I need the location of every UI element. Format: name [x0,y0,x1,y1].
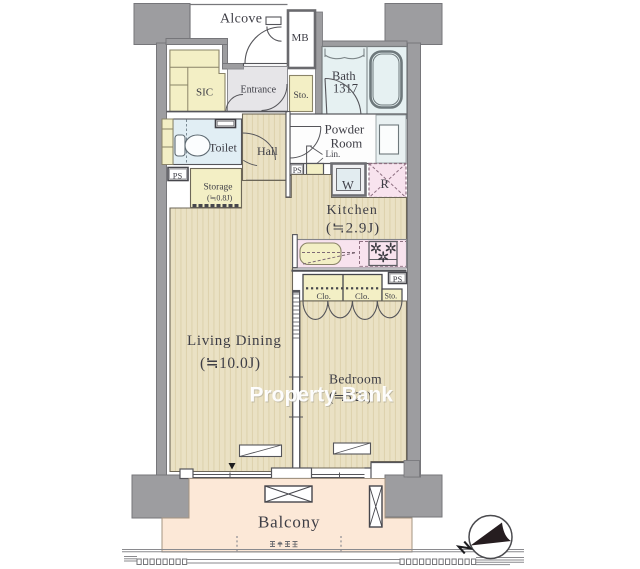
svg-text:Living Dining: Living Dining [187,333,282,349]
svg-text:W: W [342,179,354,193]
svg-text:PS: PS [173,170,183,180]
svg-text:Toilet: Toilet [209,141,237,155]
svg-text:1317: 1317 [333,82,358,96]
svg-text:(≒2.9J): (≒2.9J) [326,221,380,237]
svg-text:Sto.: Sto. [294,91,309,101]
svg-text:Sto.: Sto. [385,292,398,301]
svg-text:MB: MB [292,32,309,44]
svg-text:PS: PS [293,166,302,175]
svg-text:Balcony: Balcony [258,513,320,532]
svg-text:SIC: SIC [196,87,213,99]
svg-text:R: R [381,177,390,191]
svg-text:Property Bank: Property Bank [250,384,394,407]
svg-text:Clo.: Clo. [317,291,331,301]
svg-text:Entrance: Entrance [241,85,277,96]
svg-text:(≒0.8J): (≒0.8J) [207,194,232,203]
svg-text:Clo.: Clo. [355,291,369,301]
svg-text:Alcove: Alcove [220,12,262,27]
svg-text:(≒10.0J): (≒10.0J) [200,355,260,372]
svg-text:Lin.: Lin. [326,149,341,159]
svg-text:Storage: Storage [204,183,233,193]
svg-text:Powder: Powder [325,122,365,137]
svg-text:Kitchen: Kitchen [327,203,378,218]
svg-text:PS: PS [393,274,403,284]
